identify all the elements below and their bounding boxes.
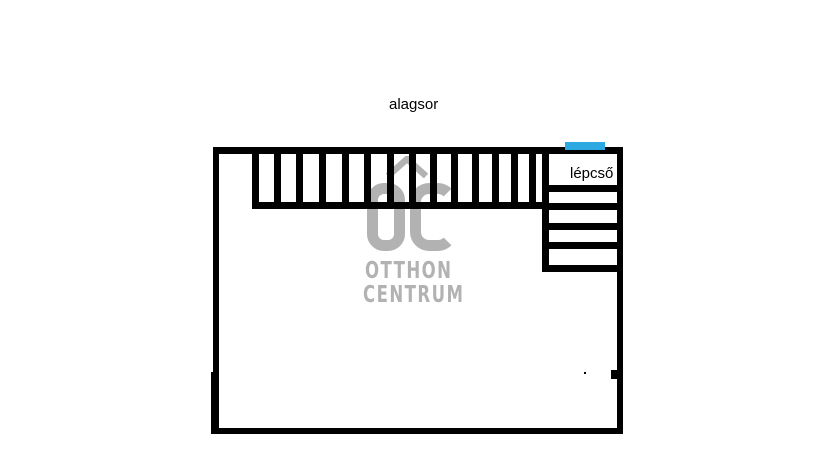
stair-tread [542,223,623,230]
stair-tread [542,242,623,249]
wall-speck [611,370,617,379]
stair-entry-marker [565,142,605,150]
stair-hatch-line [409,151,416,208]
stair-tread [542,203,623,210]
stair-hatch-line [529,151,536,208]
stair-hatch-line [387,151,394,208]
stair-hatch-line [492,151,499,208]
stair-hatch-line [451,151,458,208]
stair-hatch-line [430,151,437,208]
stair-hatch-line [511,151,518,208]
stair-run-base-line [252,202,549,209]
stair-tread [542,265,623,272]
stair-hatch-line [319,151,326,208]
floor-plan [0,0,813,460]
stair-hatch-line [296,151,303,208]
stair-tread [542,185,623,192]
wall-bottom [213,428,623,434]
wall-speck [584,372,586,374]
stair-hatch-line [342,151,349,208]
floorplan-canvas: OTTHON CENTRUM alagsor lépcső [0,0,813,460]
stair-hatch-line [364,151,371,208]
stair-hatch-line [472,151,479,208]
wall-speck [211,372,214,434]
stair-hatch-line [252,151,259,208]
stair-hatch-line [274,151,281,208]
